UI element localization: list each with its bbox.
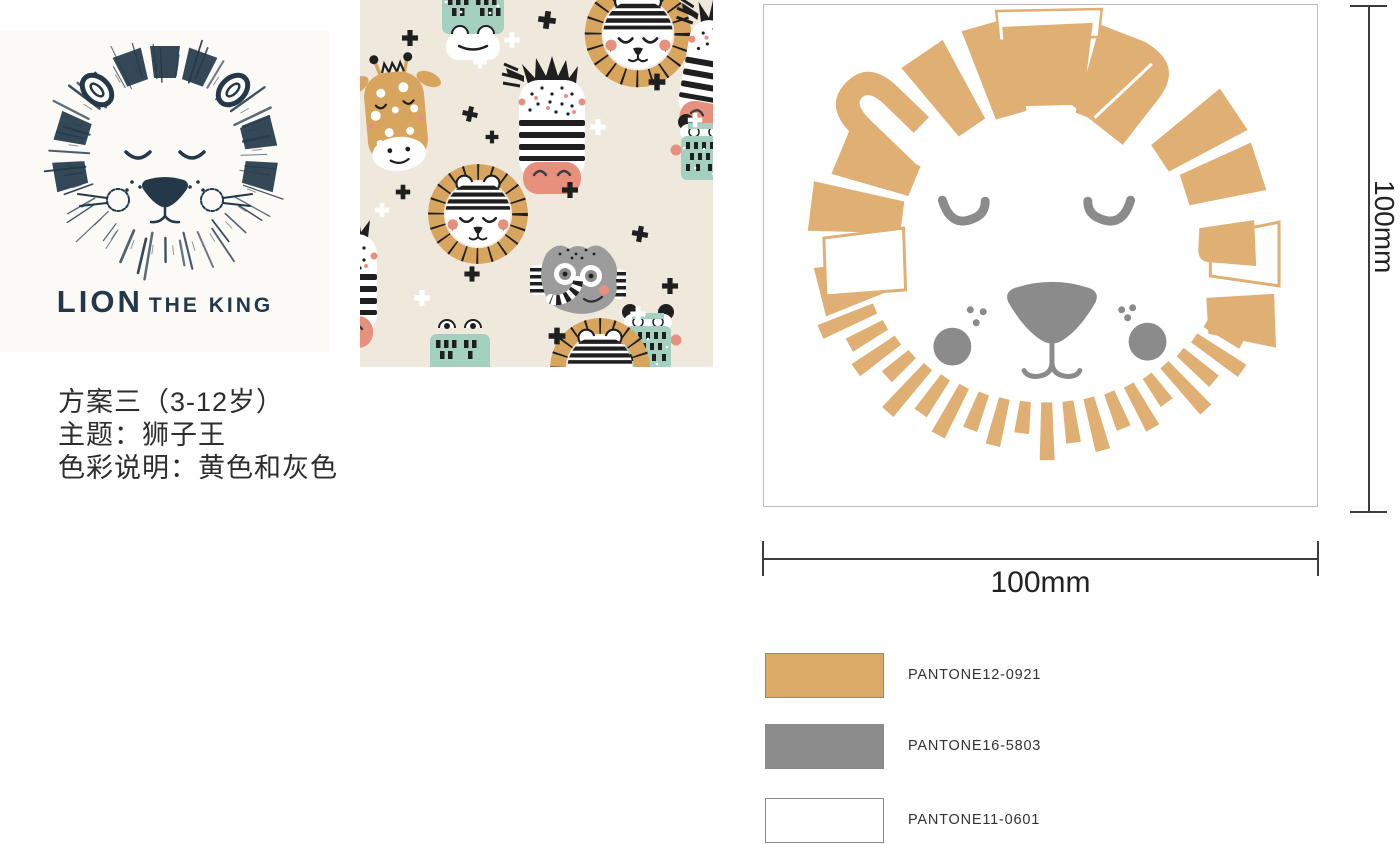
animal-pattern-illustration [360, 0, 713, 367]
height-dimension-label: 100mm [1368, 180, 1400, 273]
mane-block-right [1198, 220, 1256, 266]
logo-caption-rest: THE KING [149, 294, 273, 317]
lion-nose [1007, 282, 1097, 344]
palette-row: PANTONE16-5803 [765, 723, 1041, 769]
lion-artwork-illustration [764, 5, 1317, 506]
color-swatch-tan [765, 653, 884, 698]
logo-caption-main: LION [57, 284, 143, 319]
lion-right-cheek [1129, 323, 1167, 361]
proposal-text: 方案三（3-12岁） 主题：狮子王 色彩说明：黄色和灰色 [58, 386, 338, 485]
proposal-line-scheme: 方案三（3-12岁） [58, 386, 338, 419]
height-dimension-cap-bottom [1350, 511, 1387, 513]
design-proposal-sheet: LIONTHE KING [0, 0, 1400, 844]
width-dimension-line [763, 558, 1318, 560]
lion-mouth [1024, 345, 1080, 377]
lion-sketch-illustration [0, 30, 330, 286]
sketch-face [78, 152, 252, 222]
pantone-label: PANTONE16-5803 [908, 738, 1041, 754]
palette-row: PANTONE12-0921 [765, 652, 1041, 698]
pantone-label: PANTONE11-0601 [908, 812, 1040, 828]
mane-outline-left [824, 228, 906, 296]
animal-pattern-swatch [360, 0, 713, 367]
lion-icon [436, 172, 520, 256]
logo-caption: LIONTHE KING [0, 284, 330, 320]
width-dimension-label: 100mm [763, 566, 1318, 600]
height-dimension-cap-top [1350, 5, 1387, 7]
mane-block-right-lower [1206, 294, 1276, 348]
color-swatch-gray [765, 724, 884, 769]
lion-face [933, 200, 1166, 376]
color-swatch-white [765, 798, 884, 843]
tiger-icon [558, 326, 642, 367]
lion-artwork-frame [763, 4, 1318, 507]
lion-left-cheek [933, 328, 971, 366]
palette-row: PANTONE11-0601 [765, 797, 1040, 843]
lion-sketch-logo: LIONTHE KING [0, 30, 330, 352]
lion-right-eye [1088, 200, 1131, 221]
proposal-line-colors: 色彩说明：黄色和灰色 [58, 452, 338, 485]
lion-left-eye [942, 200, 985, 221]
croc-icon [442, 0, 504, 60]
tiger-icon [593, 0, 683, 79]
pantone-label: PANTONE12-0921 [908, 667, 1041, 683]
proposal-line-theme: 主题：狮子王 [58, 419, 338, 452]
